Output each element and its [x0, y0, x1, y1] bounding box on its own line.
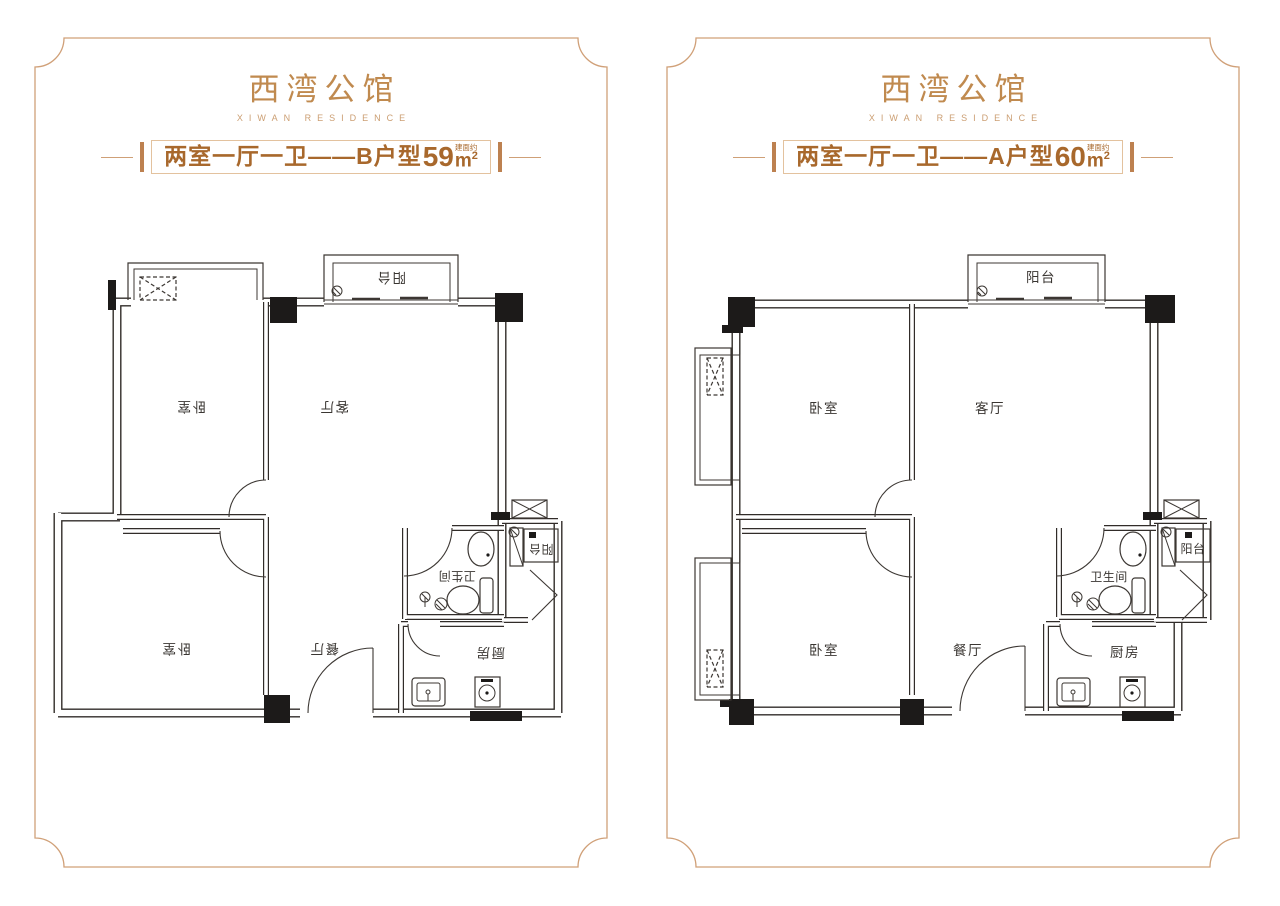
room-label-balcony-side: 阳台 [528, 542, 553, 557]
shaft-box [1164, 500, 1199, 518]
kitchen-fixtures [1057, 677, 1145, 707]
unit-area-value: 60 [1055, 144, 1086, 169]
room-label-living: 客厅 [319, 399, 349, 415]
brand-logo-en: XIWAN RESIDENCE [34, 113, 608, 123]
unit-title: 两室一厅一卫——B户型 [164, 144, 422, 169]
room-label-kitchen: 厨房 [475, 645, 505, 660]
area-unit-m2: m2 [1087, 152, 1110, 169]
structural-columns [720, 295, 1175, 725]
panel-header: 西湾公馆 XIWAN RESIDENCE 两室一厅一卫——B户型 59 建面约 … [34, 37, 608, 174]
kitchen-fixtures [412, 677, 500, 707]
unit-area-value: 59 [423, 144, 454, 169]
brand-logo-en: XIWAN RESIDENCE [666, 113, 1240, 123]
panel-header: 西湾公馆 XIWAN RESIDENCE 两室一厅一卫——A户型 60 建面约 … [666, 37, 1240, 174]
unit-area-unit: 建面约 m2 [1087, 144, 1110, 169]
floor-plan-b: 卧室 客厅 卧室 餐厅 卫生间 厨房 阳台 阳台 [40, 240, 580, 740]
ornament-bar-left [140, 142, 144, 172]
room-label-balcony-top: 阳台 [1026, 270, 1056, 285]
ornament-line-right [1141, 157, 1173, 158]
ornament-bar-left [772, 142, 776, 172]
ornament-line-left [101, 157, 133, 158]
room-label-balcony-side: 阳台 [1180, 541, 1205, 556]
unit-title-bar: 两室一厅一卫——B户型 59 建面约 m2 [34, 140, 608, 174]
panel-type-a: 西湾公馆 XIWAN RESIDENCE 两室一厅一卫——A户型 60 建面约 … [666, 37, 1240, 868]
room-label-bedroom-bottom: 卧室 [161, 641, 191, 657]
shaft-box [512, 500, 547, 518]
ornament-bar-right [498, 142, 502, 172]
ornament-line-left [733, 157, 765, 158]
room-labels: 卧室 客厅 卧室 餐厅 卫生间 厨房 阳台 阳台 [161, 270, 554, 660]
room-label-bedroom-bottom: 卧室 [809, 642, 839, 658]
room-label-balcony-top: 阳台 [376, 270, 406, 285]
room-label-dining: 餐厅 [953, 643, 983, 658]
bay-window [128, 263, 263, 300]
room-label-dining: 餐厅 [309, 641, 339, 656]
room-label-living: 客厅 [975, 400, 1005, 416]
ornament-bar-right [1130, 142, 1134, 172]
floorplan-brochure: 西湾公馆 XIWAN RESIDENCE 两室一厅一卫——B户型 59 建面约 … [0, 0, 1280, 906]
unit-title-box: 两室一厅一卫——A户型 60 建面约 m2 [783, 140, 1123, 174]
brand-logo: 西湾公馆 [666, 73, 1240, 107]
ornament-line-right [509, 157, 541, 158]
panel-type-b: 西湾公馆 XIWAN RESIDENCE 两室一厅一卫——B户型 59 建面约 … [34, 37, 608, 868]
room-labels: 卧室 客厅 卧室 餐厅 卫生间 厨房 阳台 阳台 [809, 270, 1206, 660]
floor-plan-a: 卧室 客厅 卧室 餐厅 卫生间 厨房 阳台 阳台 [680, 240, 1220, 740]
room-label-bathroom: 卫生间 [438, 569, 476, 583]
unit-title: 两室一厅一卫——A户型 [796, 144, 1054, 169]
unit-area-unit: 建面约 m2 [455, 144, 478, 169]
room-label-kitchen: 厨房 [1110, 645, 1140, 660]
room-label-bedroom-top: 卧室 [176, 399, 206, 415]
room-label-bedroom-top: 卧室 [809, 400, 839, 416]
room-label-bathroom: 卫生间 [1090, 570, 1128, 584]
unit-title-box: 两室一厅一卫——B户型 59 建面约 m2 [151, 140, 491, 174]
area-unit-m2: m2 [455, 152, 478, 169]
brand-logo: 西湾公馆 [34, 73, 608, 107]
unit-title-bar: 两室一厅一卫——A户型 60 建面约 m2 [666, 140, 1240, 174]
